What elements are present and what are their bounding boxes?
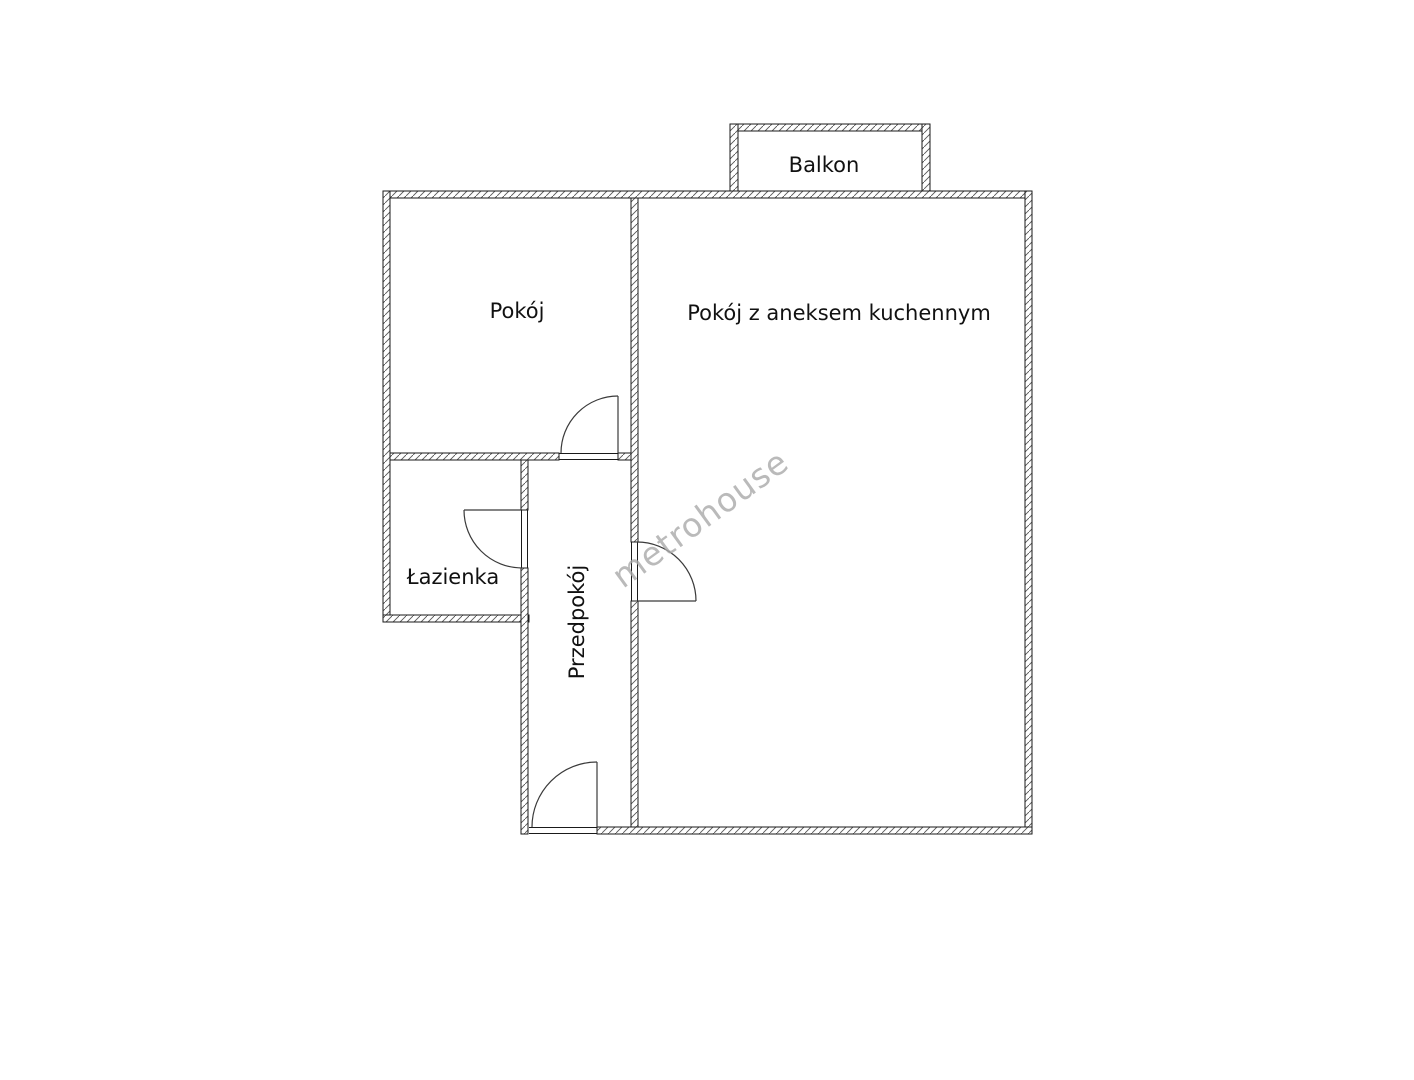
room-label-hallway: Przedpokój: [565, 565, 589, 679]
outer-left-wall: [383, 191, 390, 622]
balcony-right-wall: [922, 124, 930, 191]
floor-plan-drawing: metrohouse Balkon Pokój Pokój z aneksem …: [0, 0, 1414, 1080]
room-bottom-wall: [390, 453, 559, 460]
room-label-balcony: Balkon: [789, 153, 860, 177]
walls: [383, 124, 1032, 834]
room-labels: Balkon Pokój Pokój z aneksem kuchennym Ł…: [406, 153, 991, 679]
living-left-wall-upper: [631, 198, 638, 542]
entrance-door-threshold: [529, 828, 597, 834]
bathroom-door-threshold: [522, 510, 528, 568]
room-door-threshold: [559, 454, 618, 460]
bathroom-door-arc: [464, 510, 522, 568]
entrance-door-arc: [532, 762, 597, 827]
room-label-bathroom: Łazienka: [406, 565, 499, 589]
hallway-left-wall: [521, 568, 528, 834]
balcony-left-wall: [730, 124, 738, 191]
room-bottom-wall-stub: [618, 453, 631, 460]
floor-plan-page: metrohouse Balkon Pokój Pokój z aneksem …: [0, 0, 1414, 1080]
bathroom-bottom-wall: [383, 615, 529, 622]
room-label-room: Pokój: [490, 299, 545, 323]
outer-right-wall: [1025, 191, 1032, 834]
bathroom-right-wall-upper: [521, 453, 528, 510]
outer-top-wall: [383, 191, 1032, 198]
living-left-wall-lower: [631, 601, 638, 827]
room-label-living-kitchen: Pokój z aneksem kuchennym: [687, 301, 991, 325]
balcony-top-wall: [730, 124, 930, 131]
room-door-arc: [561, 396, 618, 453]
outer-bottom-wall: [597, 827, 1032, 834]
